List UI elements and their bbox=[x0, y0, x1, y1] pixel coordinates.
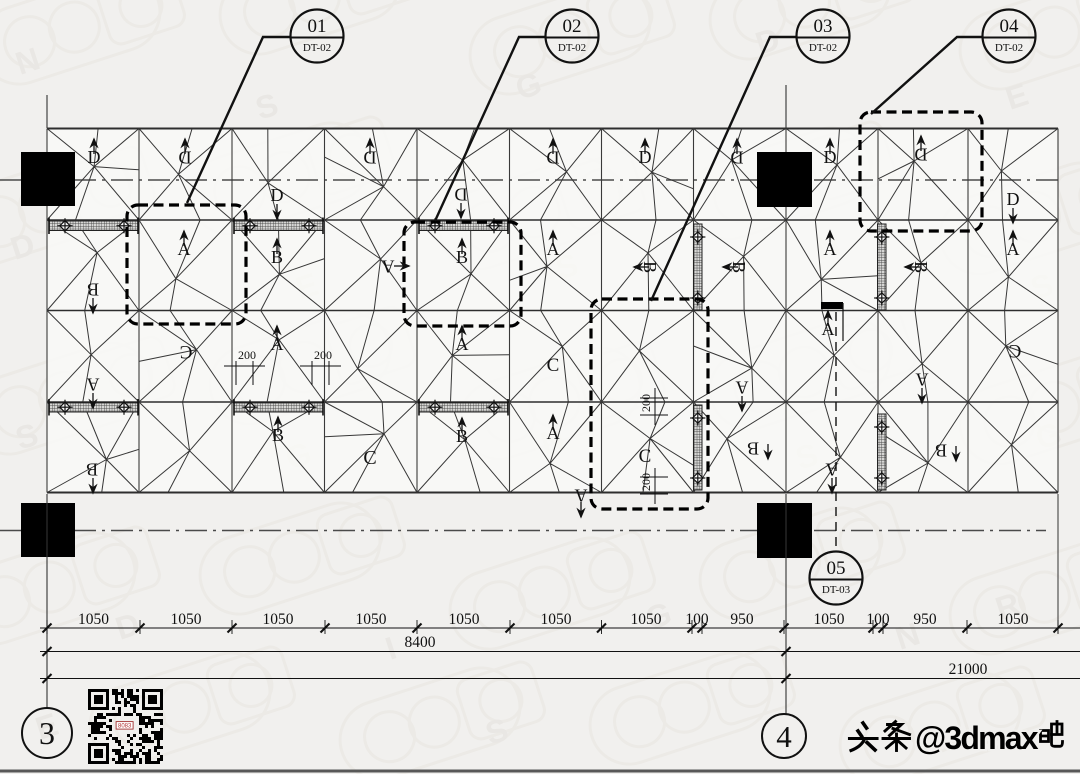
svg-text:DT-02: DT-02 bbox=[303, 42, 331, 54]
svg-text:C: C bbox=[180, 341, 193, 362]
svg-text:8400: 8400 bbox=[405, 634, 436, 651]
svg-text:1050: 1050 bbox=[356, 611, 387, 628]
svg-text:200: 200 bbox=[314, 348, 332, 362]
svg-text:21000: 21000 bbox=[949, 661, 988, 678]
svg-text:A: A bbox=[736, 377, 749, 397]
svg-text:1050: 1050 bbox=[449, 611, 480, 628]
svg-text:C: C bbox=[363, 447, 376, 469]
svg-text:A: A bbox=[382, 256, 395, 276]
svg-text:1050: 1050 bbox=[814, 611, 845, 628]
svg-text:DT-02: DT-02 bbox=[558, 42, 586, 54]
svg-text:1050: 1050 bbox=[171, 611, 202, 628]
svg-text:D: D bbox=[1007, 189, 1020, 209]
svg-text:A: A bbox=[916, 369, 929, 389]
svg-text:D: D bbox=[271, 185, 284, 205]
svg-text:01: 01 bbox=[308, 16, 327, 37]
svg-text:200: 200 bbox=[639, 394, 653, 412]
svg-text:DT-03: DT-03 bbox=[822, 584, 851, 596]
svg-text:B: B bbox=[935, 440, 947, 460]
svg-text:3: 3 bbox=[39, 715, 55, 751]
svg-text:C: C bbox=[639, 446, 652, 467]
svg-text:DT-02: DT-02 bbox=[995, 42, 1023, 54]
svg-text:100: 100 bbox=[866, 611, 890, 628]
svg-text:B: B bbox=[86, 459, 98, 479]
svg-text:05: 05 bbox=[827, 558, 846, 579]
svg-text:1050: 1050 bbox=[263, 611, 294, 628]
svg-text:04: 04 bbox=[1000, 16, 1020, 37]
svg-text:1050: 1050 bbox=[78, 611, 109, 628]
svg-text:DT-02: DT-02 bbox=[809, 42, 837, 54]
svg-text:8083: 8083 bbox=[118, 724, 132, 730]
svg-text:1050: 1050 bbox=[541, 611, 572, 628]
svg-text:A: A bbox=[87, 374, 100, 394]
svg-text:1050: 1050 bbox=[998, 611, 1029, 628]
svg-text:200: 200 bbox=[639, 473, 653, 491]
svg-text:02: 02 bbox=[563, 16, 582, 37]
svg-text:03: 03 bbox=[814, 16, 833, 37]
svg-text:200: 200 bbox=[238, 348, 256, 362]
svg-text:4: 4 bbox=[776, 719, 792, 754]
svg-text:C: C bbox=[547, 355, 560, 376]
svg-text:A: A bbox=[826, 459, 839, 479]
svg-text:B: B bbox=[87, 279, 99, 299]
svg-text:1050: 1050 bbox=[631, 611, 662, 628]
svg-text:D: D bbox=[455, 184, 468, 204]
svg-text:950: 950 bbox=[913, 611, 937, 628]
svg-text:950: 950 bbox=[730, 611, 754, 628]
svg-text:C: C bbox=[1009, 340, 1022, 361]
svg-text:B: B bbox=[747, 438, 759, 458]
svg-text:100: 100 bbox=[685, 611, 709, 628]
svg-text:@3dmax: @3dmax bbox=[915, 720, 1039, 756]
